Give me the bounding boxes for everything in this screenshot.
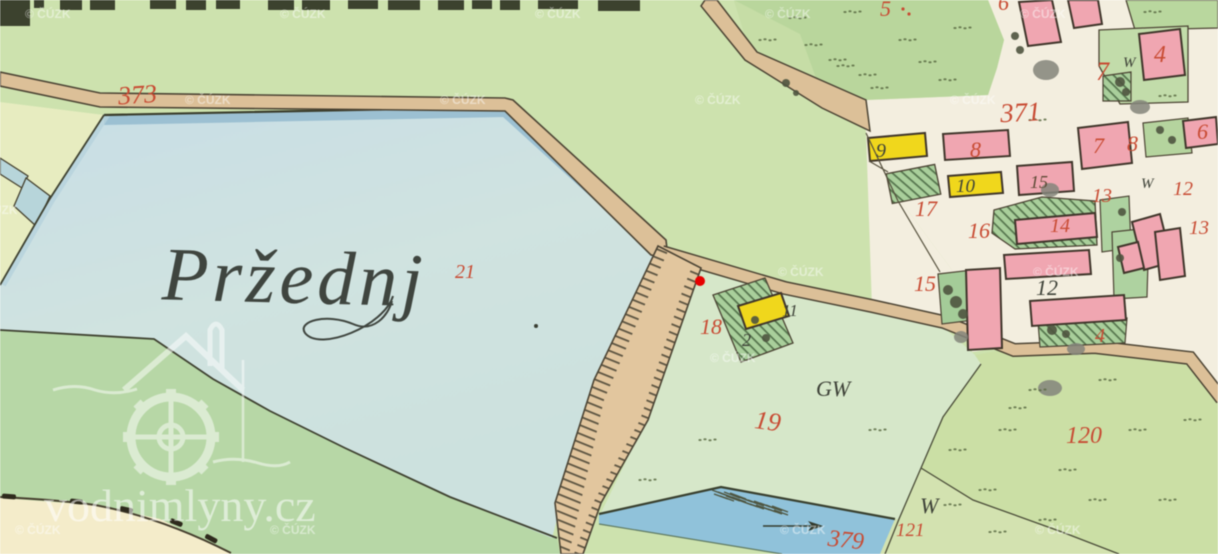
svg-text:4: 4 — [1095, 325, 1105, 347]
svg-text:379: 379 — [826, 526, 866, 554]
svg-text:© ČÚZK: © ČÚZK — [185, 92, 231, 107]
svg-text:© ČÚZK: © ČÚZK — [780, 522, 826, 537]
svg-text:15: 15 — [914, 271, 936, 296]
svg-text:© ČÚZK: © ČÚZK — [778, 264, 824, 279]
svg-text:vodnimlyny.cz: vodnimlyny.cz — [44, 480, 316, 531]
svg-text:© ČÚZK: © ČÚZK — [710, 350, 756, 365]
svg-text:373: 373 — [116, 79, 158, 111]
svg-text:© ČÚZK: © ČÚZK — [0, 202, 18, 217]
svg-text:16: 16 — [968, 218, 990, 243]
svg-text:7: 7 — [1096, 57, 1110, 86]
svg-text:18: 18 — [700, 314, 722, 339]
svg-text:21: 21 — [455, 261, 475, 283]
svg-text:9: 9 — [876, 140, 886, 162]
svg-text:© ČÚZK: © ČÚZK — [1035, 522, 1081, 537]
svg-text:6: 6 — [998, 0, 1009, 15]
svg-text:Pržednj: Pržednj — [160, 232, 428, 323]
svg-text:5: 5 — [880, 0, 891, 21]
svg-text:© ČÚZK: © ČÚZK — [1033, 264, 1079, 279]
svg-text:© ČÚZK: © ČÚZK — [440, 92, 486, 107]
svg-text:13: 13 — [1092, 185, 1112, 207]
svg-text:13: 13 — [1189, 217, 1209, 239]
svg-text:© ČÚZK: © ČÚZK — [280, 6, 326, 21]
svg-text:W: W — [1123, 55, 1137, 71]
svg-text:371: 371 — [998, 96, 1041, 128]
svg-text:121: 121 — [896, 520, 925, 541]
svg-text:11: 11 — [782, 301, 798, 320]
svg-text:© ČÚZK: © ČÚZK — [1020, 6, 1066, 21]
svg-text:19: 19 — [753, 405, 783, 437]
svg-text:14: 14 — [1050, 215, 1070, 237]
svg-text:8: 8 — [970, 137, 981, 162]
svg-text:© ČÚZK: © ČÚZK — [765, 6, 811, 21]
svg-text:120: 120 — [1066, 423, 1102, 449]
svg-text:7: 7 — [1093, 133, 1105, 158]
svg-text:17: 17 — [915, 196, 938, 221]
svg-text:15: 15 — [1030, 172, 1048, 192]
svg-text:W: W — [1141, 176, 1155, 192]
svg-text:© ČÚZK: © ČÚZK — [25, 6, 71, 21]
svg-text:2: 2 — [742, 330, 751, 350]
svg-text:4: 4 — [1154, 42, 1166, 68]
svg-text:© ČÚZK: © ČÚZK — [535, 6, 581, 21]
svg-text:12: 12 — [1173, 178, 1193, 200]
svg-text:© ČÚZK: © ČÚZK — [950, 92, 996, 107]
svg-text:6: 6 — [1197, 119, 1208, 144]
svg-text:© ČÚZK: © ČÚZK — [695, 92, 741, 107]
svg-text:8: 8 — [1127, 131, 1138, 156]
svg-text:10: 10 — [956, 176, 976, 197]
svg-text:W: W — [920, 493, 940, 518]
svg-text:GW: GW — [816, 376, 852, 401]
